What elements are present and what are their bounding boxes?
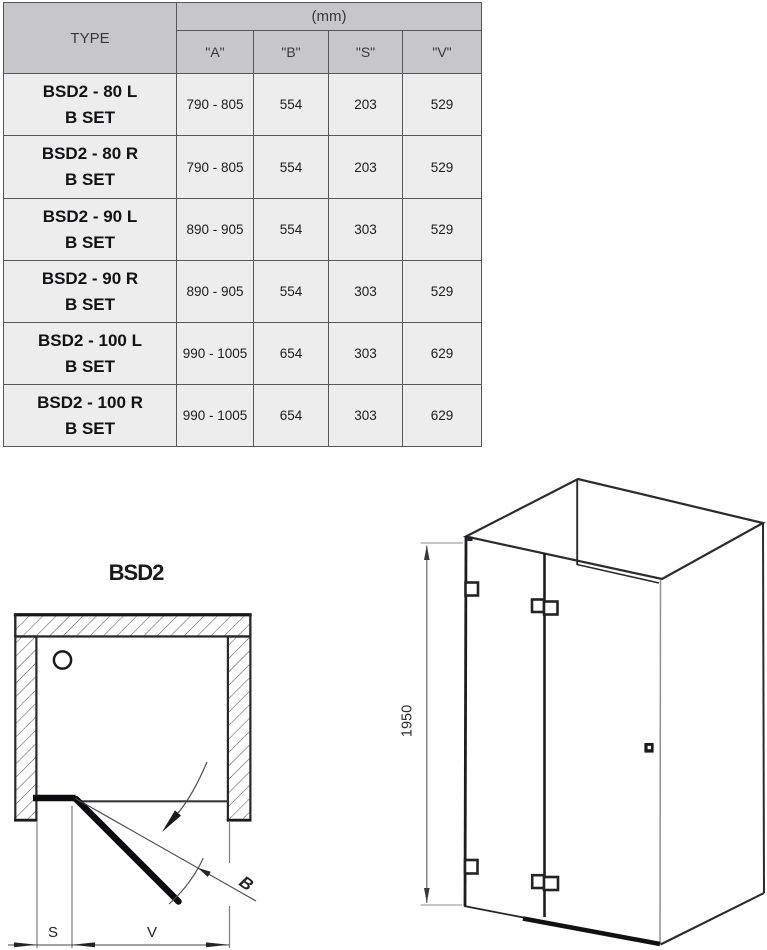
svg-text:BSD2: BSD2 bbox=[109, 560, 164, 585]
svg-text:V: V bbox=[147, 924, 157, 941]
svg-text:1950: 1950 bbox=[400, 705, 416, 737]
svg-text:S: S bbox=[48, 924, 58, 941]
